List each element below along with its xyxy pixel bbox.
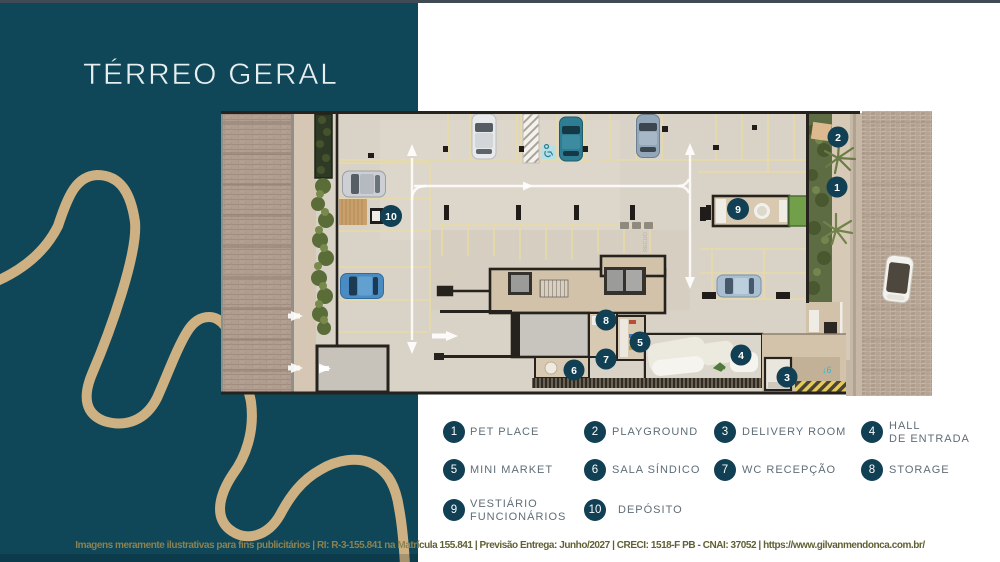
svg-text:10: 10 [385,211,397,223]
svg-text:5: 5 [637,337,643,349]
svg-text:7: 7 [603,354,609,366]
svg-text:4: 4 [738,350,744,362]
svg-text:↓6: ↓6 [822,365,832,375]
svg-text:2: 2 [835,132,841,144]
svg-text:3: 3 [784,372,790,384]
svg-text:1: 1 [834,182,840,194]
svg-text:6: 6 [571,365,577,377]
svg-text:RECUO: RECUO [643,231,649,252]
svg-text:9: 9 [735,204,741,216]
svg-text:8: 8 [603,315,609,327]
